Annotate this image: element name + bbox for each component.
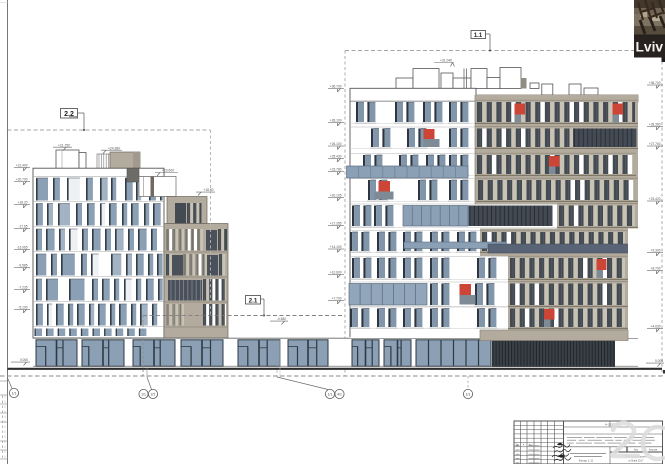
svg-text:м.Львів 2017: м.Львів 2017: [629, 460, 644, 463]
svg-text:0.000: 0.000: [20, 358, 28, 362]
svg-text:+20.700: +20.700: [16, 177, 28, 181]
svg-text:1/1: 1/1: [12, 391, 17, 395]
svg-text:+36.700: +36.700: [649, 81, 661, 85]
svg-text:4/1: 4/1: [337, 392, 342, 396]
svg-text:Арк: Арк: [529, 444, 533, 447]
svg-text:+24.380: +24.380: [108, 146, 120, 150]
svg-text:+28.360: +28.360: [649, 122, 661, 126]
svg-text:-9.585: -9.585: [18, 263, 27, 267]
svg-text:1/1: 1/1: [141, 392, 146, 396]
svg-text:+7.700: +7.700: [332, 296, 342, 300]
svg-text:+27.760: +27.760: [649, 142, 661, 146]
svg-text:Зм: Зм: [515, 444, 518, 447]
svg-text:+4.630: +4.630: [651, 324, 661, 328]
svg-text:+25.430: +25.430: [330, 154, 342, 158]
svg-text:+28.100: +28.100: [330, 118, 342, 122]
svg-text:+9.300: +9.300: [651, 248, 661, 252]
svg-text:1.1: 1.1: [474, 33, 483, 39]
svg-text:+21.400: +21.400: [16, 163, 28, 167]
svg-text:1/1: 1/1: [328, 392, 333, 396]
svg-text:+31.040: +31.040: [440, 59, 452, 63]
svg-text:Фасад 1-11: Фасад 1-11: [579, 459, 594, 463]
svg-text:Lviv C: Lviv C: [636, 40, 665, 55]
svg-text:+23.420: +23.420: [649, 197, 661, 201]
svg-text:-5.100: -5.100: [18, 305, 27, 309]
svg-text:+23.600: +23.600: [162, 169, 174, 173]
svg-text:+26.100: +26.100: [330, 142, 342, 146]
svg-text:+14.100: +14.100: [330, 245, 342, 249]
svg-text:1/1: 1/1: [466, 392, 471, 396]
svg-text:0.000: 0.000: [655, 359, 663, 363]
svg-text:+23.780: +23.780: [330, 167, 342, 171]
svg-text:-13.065: -13.065: [17, 245, 28, 249]
svg-text:+36.700: +36.700: [330, 84, 342, 88]
svg-text:+18.20: +18.20: [18, 200, 28, 204]
svg-text:-17.65: -17.65: [18, 224, 27, 228]
svg-text:+8.700: +8.700: [651, 266, 661, 270]
svg-text:-0.580: -0.580: [277, 317, 286, 321]
svg-text:2.1: 2.1: [249, 297, 258, 304]
svg-text:+17.285: +17.285: [330, 221, 342, 225]
svg-text:2/1: 2/1: [151, 392, 156, 396]
svg-text:Аркушів: Аркушів: [649, 449, 658, 452]
svg-text:+20.105: +20.105: [330, 193, 342, 197]
svg-text:+21.750: +21.750: [58, 143, 70, 147]
svg-text:-7.235: -7.235: [18, 285, 27, 289]
svg-text:+10.600: +10.600: [330, 270, 342, 274]
svg-text:+18.60: +18.60: [203, 188, 213, 192]
